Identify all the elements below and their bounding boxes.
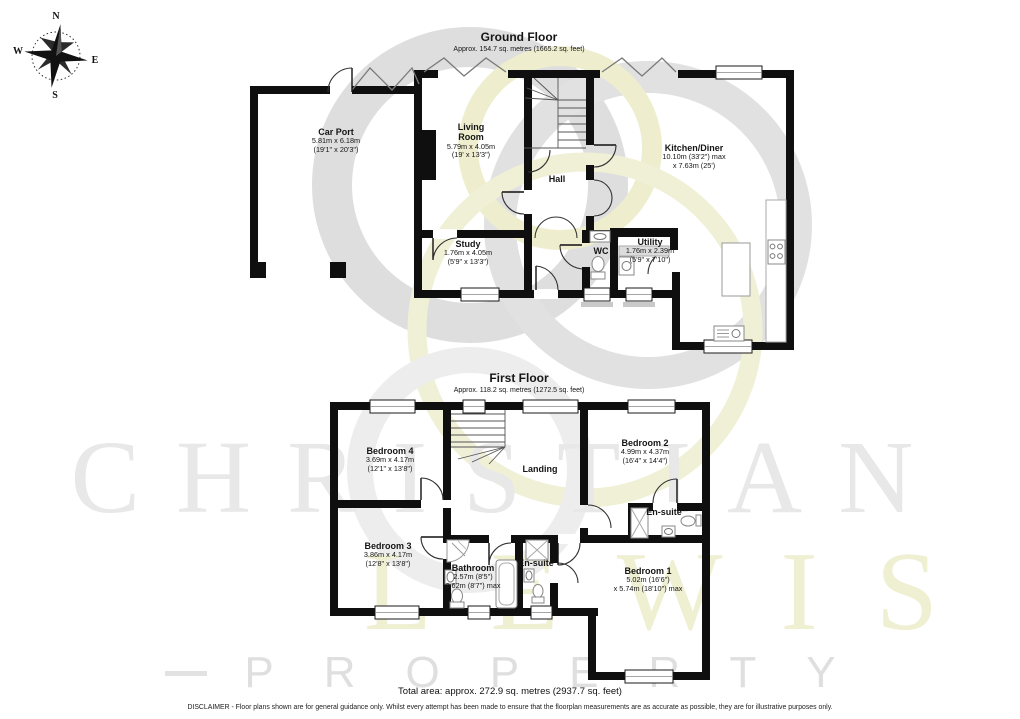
room-label-car-port: Car Port 5.81m x 6.18m (19'1" x 20'3") — [313, 127, 359, 154]
room-dims-imperial: (5'9" x 13'3") — [418, 258, 518, 266]
room-dims-imperial: (12'8" x 13'8") — [338, 560, 438, 568]
room-label-ensuite-right: En-suite — [646, 507, 682, 517]
room-name: En-suite — [646, 507, 682, 517]
ground-floor-walls — [250, 70, 794, 350]
ground-floor-title: Ground Floor — [453, 31, 584, 45]
ground-floor-stairs — [524, 78, 586, 148]
first-floor-stairs — [451, 410, 505, 464]
room-dims-imperial: x 7.63m (25') — [639, 162, 749, 170]
room-label-bedroom3: Bedroom 3 3.86m x 4.17m (12'8" x 13'8") — [338, 541, 438, 568]
ground-floor-subtitle: Approx. 154.7 sq. metres (1665.2 sq. fee… — [453, 46, 584, 54]
room-dims-imperial: (19' x 13'3") — [426, 151, 516, 159]
first-floor-subtitle: Approx. 118.2 sq. metres (1272.5 sq. fee… — [454, 387, 585, 395]
room-dims-imperial: (19'1" x 20'3") — [291, 146, 381, 154]
ground-floor-title-block: Ground Floor Approx. 154.7 sq. metres (1… — [453, 31, 584, 54]
room-label-living-room: Living Room 5.79m x 4.05m (19' x 13'3") — [448, 122, 494, 159]
floorplan-page: CHRISTIAN LEWIS PROPERTY N E S W — [0, 0, 1020, 719]
room-label-landing: Landing — [523, 464, 558, 474]
room-dims-imperial: (5'9" x 7'10") — [602, 256, 698, 264]
room-label-bedroom4: Bedroom 4 3.69m x 4.17m (12'1" x 13'8") — [340, 446, 440, 473]
room-name: En-suite — [518, 558, 554, 568]
room-label-utility: Utility 1.76m x 2.39m (5'9" x 7'10") — [602, 237, 698, 264]
disclaimer-text: DISCLAIMER - Floor plans shown are for g… — [0, 704, 1020, 711]
first-floor-title-block: First Floor Approx. 118.2 sq. metres (12… — [454, 372, 585, 395]
room-dims-imperial: (12'1" x 13'8") — [340, 465, 440, 473]
compass-north-label: N — [52, 11, 60, 22]
ground-floor-fixtures — [590, 200, 786, 342]
room-dims-imperial: 2.62m (8'7") max — [428, 582, 518, 590]
first-floor-title: First Floor — [454, 372, 585, 386]
room-name: Living Room — [448, 122, 494, 143]
room-name: Hall — [549, 174, 566, 184]
compass-rose-icon: N E S W — [10, 8, 102, 100]
ground-floor-windows — [461, 66, 762, 353]
room-label-kitchen-diner: Kitchen/Diner 10.10m (33'2") max x 7.63m… — [639, 143, 749, 170]
compass-south-label: S — [52, 90, 58, 100]
room-name: Landing — [523, 464, 558, 474]
total-area-text: Total area: approx. 272.9 sq. metres (29… — [0, 686, 1020, 697]
compass-west-label: W — [13, 46, 23, 57]
room-label-bedroom1: Bedroom 1 5.02m (16'6") x 5.74m (18'10")… — [588, 566, 708, 593]
compass-east-label: E — [92, 55, 99, 66]
room-label-bedroom2: Bedroom 2 4.99m x 4.37m (16'4" x 14'4") — [595, 438, 695, 465]
room-label-study: Study 1.76m x 4.05m (5'9" x 13'3") — [418, 239, 518, 266]
floor-plan-drawing — [0, 0, 1020, 719]
room-label-bathroom: Bathroom 2.57m (8'5") 2.62m (8'7") max — [428, 563, 518, 590]
room-label-ensuite-center: En-suite — [518, 558, 554, 568]
room-dims-imperial: x 5.74m (18'10") max — [588, 585, 708, 593]
room-label-hall: Hall — [549, 174, 566, 184]
room-dims-imperial: (16'4" x 14'4") — [595, 457, 695, 465]
